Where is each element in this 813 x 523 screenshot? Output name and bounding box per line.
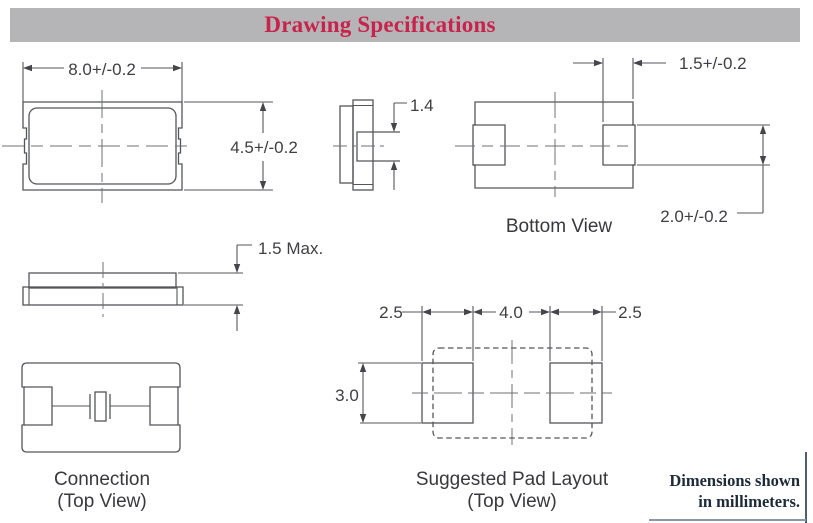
arrow-left <box>550 309 559 315</box>
arrow-left <box>23 65 32 71</box>
pad-width-dimension-label: 1.5+/-0.2 <box>679 54 747 73</box>
arrow-down <box>260 181 266 190</box>
top-view-drawing: 8.0+/-0.2 4.5+/-0.2 <box>2 60 298 203</box>
drawing-specifications-page: Drawing Specifications 8.0+/-0.2 4.5+/- <box>0 0 813 523</box>
crystal-symbol <box>95 392 106 421</box>
lid-dim-leader <box>394 103 407 190</box>
bottom-view-caption: Bottom View <box>506 216 613 237</box>
arrow-left <box>473 309 482 315</box>
width-dimension-label: 8.0+/-0.2 <box>68 60 136 79</box>
height-dim-leader <box>237 245 252 331</box>
arrow-right <box>593 309 602 315</box>
arrow-down <box>234 264 240 273</box>
max-height-dimension-label: 1.5 Max. <box>258 239 323 258</box>
arrow-right <box>464 309 473 315</box>
arrow-right <box>541 309 550 315</box>
arrow-right <box>594 60 603 66</box>
pad-layout-caption: Suggested Pad Layout <box>416 469 609 490</box>
pad-length-dimension-line <box>737 134 763 213</box>
left-pad-outline <box>473 125 505 165</box>
left-pad-width-label: 2.5 <box>379 303 403 322</box>
units-note-line1: Dimensions shown <box>669 470 800 491</box>
pad-height-extension-lines <box>358 363 421 423</box>
units-note: Dimensions shown in millimeters. <box>669 470 800 512</box>
pad-length-dimension-label: 2.0+/-0.2 <box>660 207 728 226</box>
arrow-down <box>760 156 766 165</box>
units-note-line2: in millimeters. <box>669 491 800 512</box>
right-pad-width-label: 2.5 <box>618 303 642 322</box>
arrow-up <box>234 305 240 314</box>
arrow-left <box>633 60 642 66</box>
cap-rim-lines <box>353 106 373 185</box>
arrow-up <box>760 125 766 134</box>
arrow-up <box>391 161 397 170</box>
arrow-right <box>173 65 182 71</box>
connection-caption: Connection <box>54 469 150 490</box>
crystal-plates <box>90 394 110 419</box>
arrow-left <box>422 309 431 315</box>
side-view-drawing: 1.5 Max. <box>23 239 323 331</box>
right-pad-outline <box>603 125 635 165</box>
pad-height-label: 3.0 <box>335 386 359 405</box>
pad-width-extension-lines <box>603 58 633 122</box>
pad-layout-subcaption: (Top View) <box>467 491 556 512</box>
height-dimension-label: 4.5+/-0.2 <box>230 138 298 157</box>
right-pad-outline <box>150 387 178 425</box>
cap-outline <box>353 100 373 190</box>
left-pad-outline <box>24 387 52 425</box>
pad-layout-drawing: 2.5 4.0 2.5 3.0 Suggested Pad Layout (To… <box>335 303 642 512</box>
table-border-vertical <box>805 452 807 523</box>
technical-drawings: 8.0+/-0.2 4.5+/-0.2 1.4 <box>0 0 813 523</box>
connection-subcaption: (Top View) <box>57 491 146 512</box>
package-outline <box>473 102 635 188</box>
arrow-up <box>260 102 266 111</box>
bottom-view-drawing: 1.5+/-0.2 2.0+/-0.2 Bottom View <box>455 54 770 237</box>
connection-drawing: Connection (Top View) <box>22 363 180 512</box>
lid-dimension-label: 1.4 <box>410 96 434 115</box>
table-border-horizontal <box>649 519 806 521</box>
package-outline <box>22 363 180 452</box>
pad-spacing-label: 4.0 <box>499 303 523 322</box>
arrow-up <box>360 363 366 372</box>
arrow-down <box>391 123 397 132</box>
height-extension-lines <box>178 273 243 305</box>
arrow-down <box>360 414 366 423</box>
end-view-drawing: 1.4 <box>333 96 434 190</box>
pad-length-extension-lines <box>637 125 770 165</box>
body-outline <box>340 106 353 183</box>
